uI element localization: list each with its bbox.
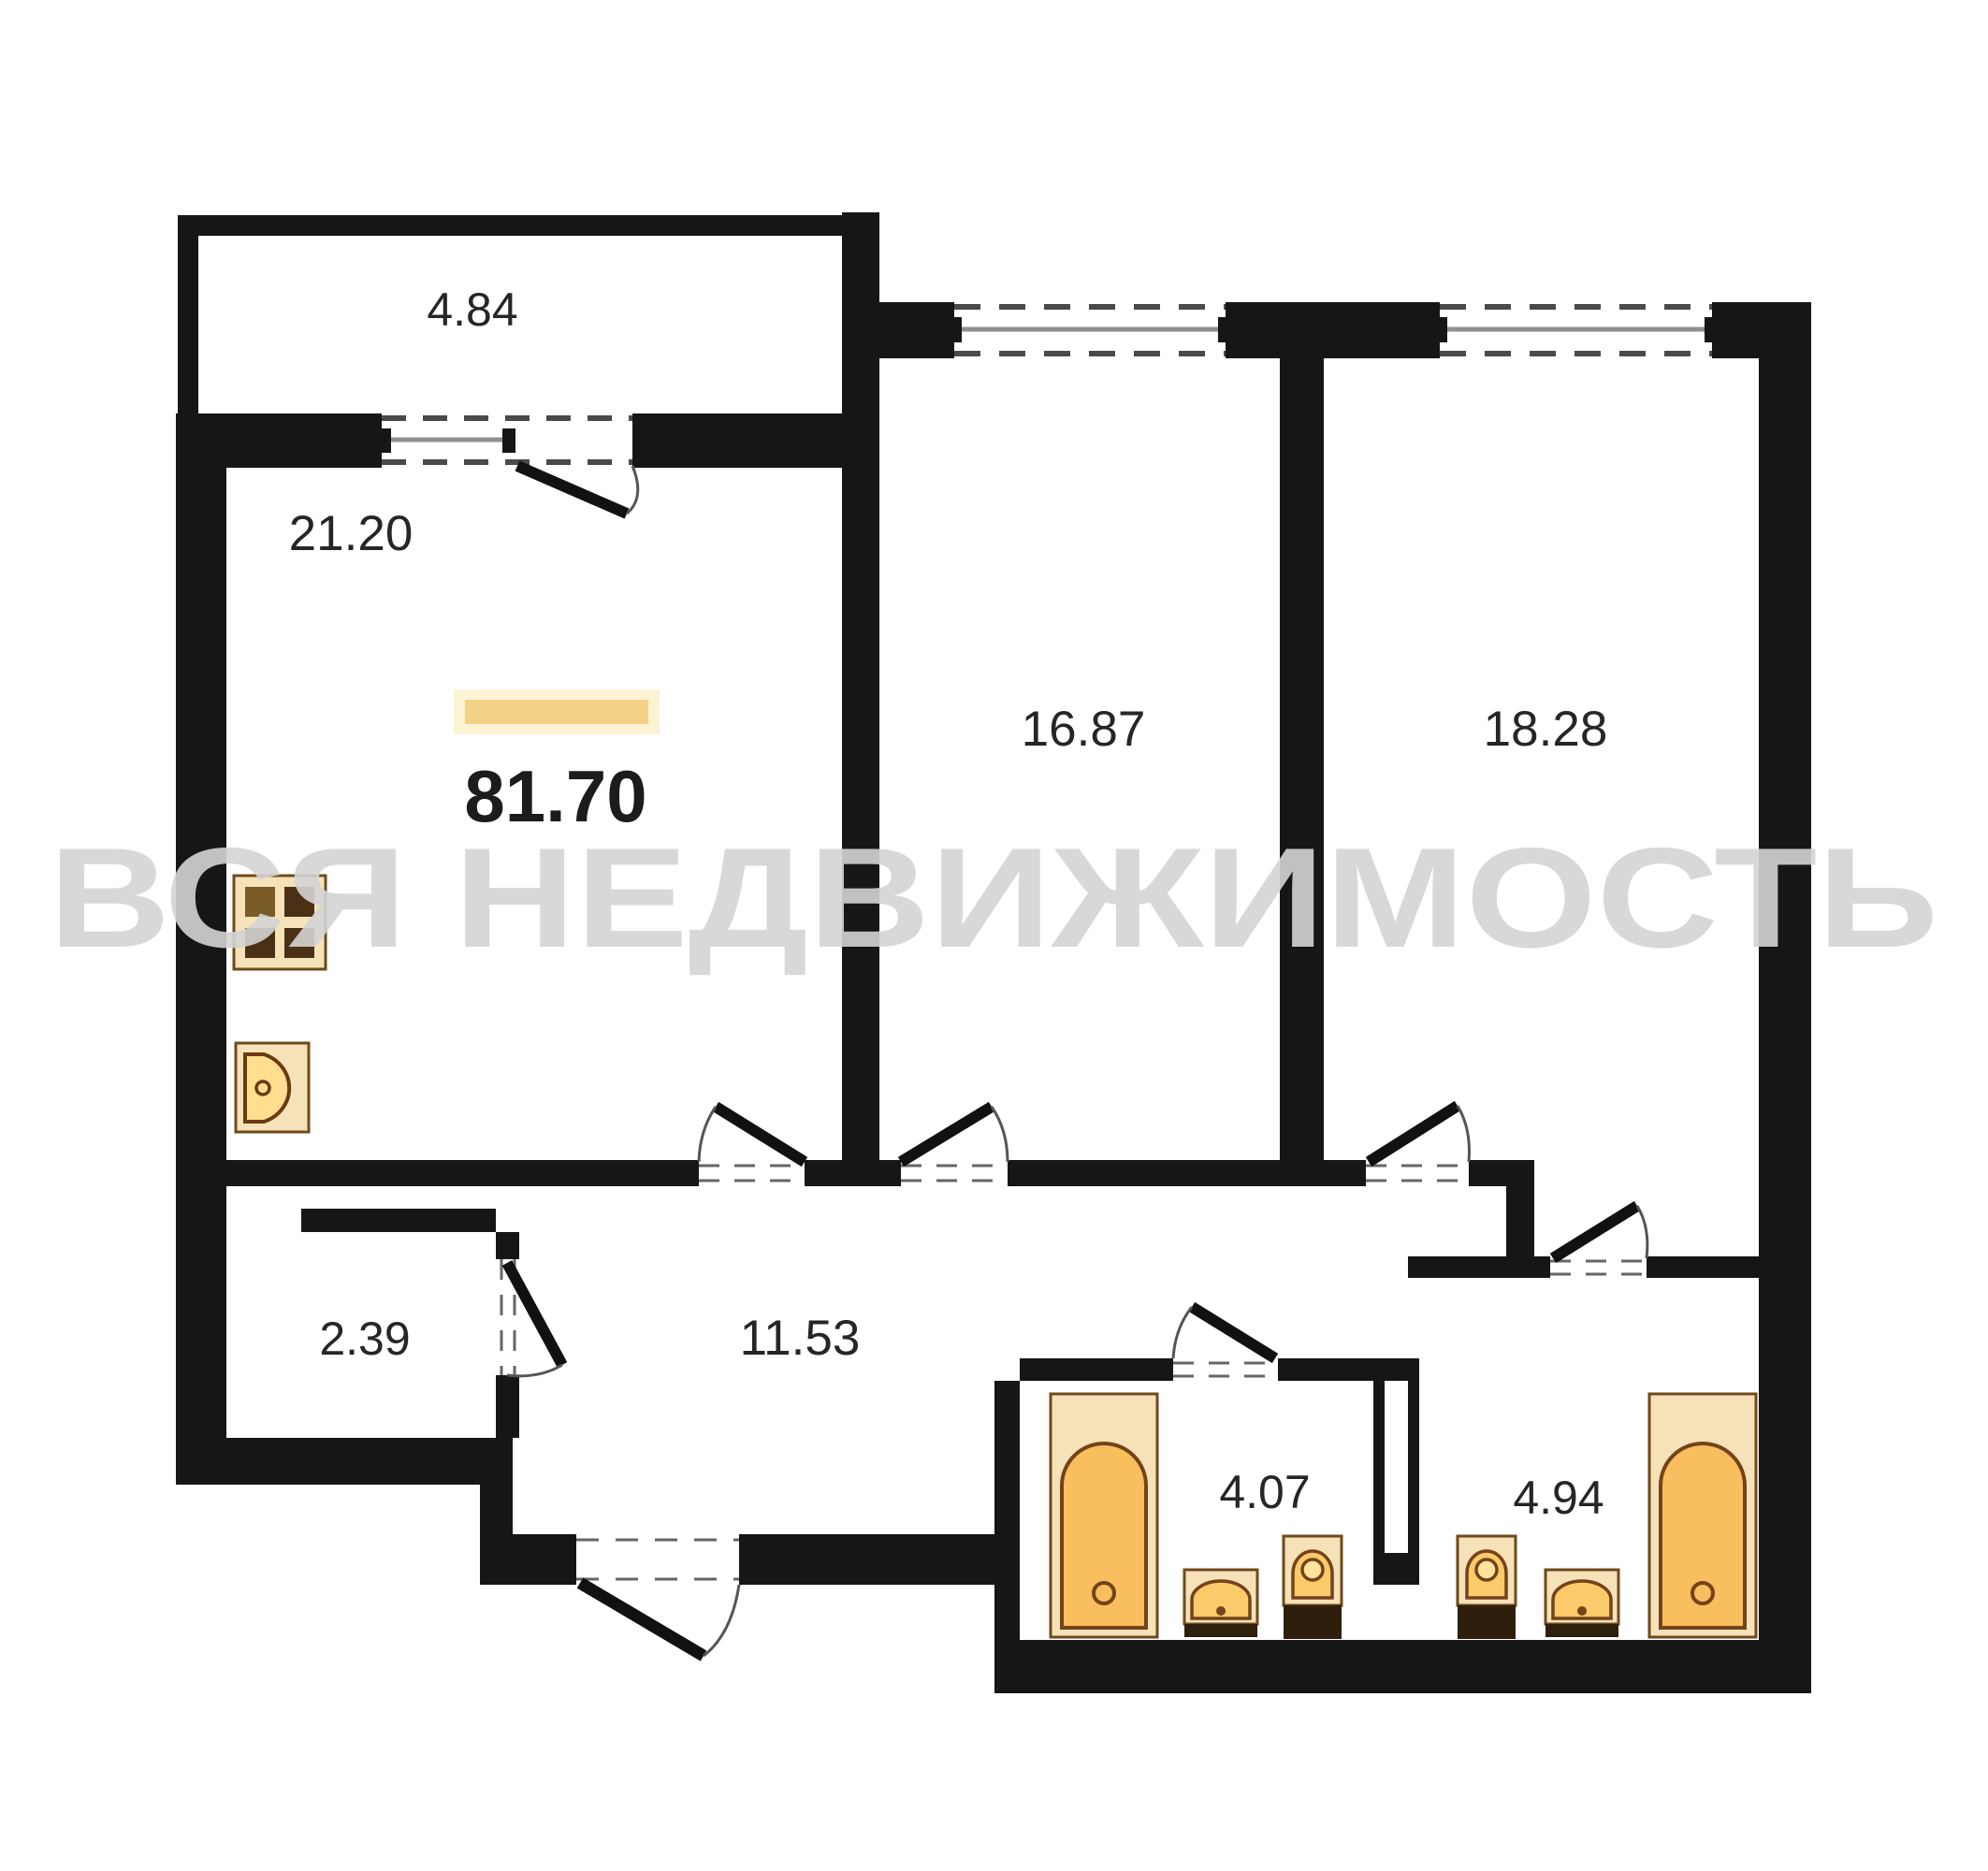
wall <box>226 1160 699 1186</box>
door-swing-icon <box>901 1107 1008 1181</box>
wall <box>1008 1160 1366 1186</box>
room-label-balcony: 4.84 <box>427 283 517 336</box>
windows <box>378 307 1718 462</box>
wall <box>1280 358 1324 1160</box>
floor-plan-svg: ВСЯ НЕДВИЖИМОСТЬ 81.70 4.84 21.20 16.87 … <box>0 0 1988 1871</box>
door-swing-icon <box>1366 1106 1470 1181</box>
washbasin-icon <box>1545 1570 1618 1637</box>
wall <box>178 1438 513 1485</box>
watermark-text: ВСЯ НЕДВИЖИМОСТЬ <box>49 819 1938 978</box>
wall <box>1278 1358 1373 1381</box>
room-label-bedroom-1: 16.87 <box>1022 702 1146 757</box>
wall <box>1647 1256 1759 1278</box>
door-swing-icon <box>1173 1307 1278 1376</box>
door-swing-icon <box>501 1259 562 1376</box>
wall <box>1226 302 1440 358</box>
wall <box>1759 302 1811 1693</box>
room-label-wardrobe: 2.39 <box>319 1313 410 1365</box>
bathtub-icon <box>1649 1394 1756 1637</box>
total-area-bar <box>465 700 648 724</box>
toilet-icon <box>1458 1536 1516 1639</box>
window-icon <box>378 418 632 462</box>
vent-shaft <box>1385 1381 1408 1553</box>
wall <box>480 1485 513 1585</box>
kitchen-sink-icon <box>236 1043 309 1132</box>
wall <box>301 1209 496 1232</box>
room-label-living-room: 21.20 <box>289 506 414 561</box>
wall <box>739 1534 1020 1585</box>
window-icon <box>949 307 1231 354</box>
room-label-bedroom-2: 18.28 <box>1484 702 1608 757</box>
room-label-bathroom-2: 4.94 <box>1513 1472 1603 1524</box>
wall <box>496 1232 519 1259</box>
bathtub-icon <box>1051 1394 1157 1637</box>
wall <box>994 1640 1811 1693</box>
room-label-hallway: 11.53 <box>740 1311 861 1366</box>
wall <box>1020 1358 1173 1381</box>
wall <box>178 236 198 413</box>
washbasin-icon <box>1184 1570 1257 1637</box>
bathroom-2-fixtures <box>1458 1394 1756 1639</box>
toilet-icon <box>1284 1536 1342 1639</box>
door-swing-icon <box>1550 1206 1647 1274</box>
wall <box>879 302 954 358</box>
total-area-value: 81.70 <box>464 755 646 837</box>
wall <box>805 1160 901 1186</box>
wall <box>842 212 879 1186</box>
entrance-door-icon <box>576 1540 739 1656</box>
wall <box>496 1375 519 1438</box>
door-swing-icon <box>517 466 638 514</box>
window-icon <box>1434 307 1718 354</box>
wall <box>178 215 879 236</box>
total-area-badge: 81.70 <box>454 689 660 837</box>
wall <box>1408 1256 1550 1278</box>
room-label-bathroom-1: 4.07 <box>1219 1466 1310 1518</box>
door-swing-icon <box>699 1107 805 1181</box>
